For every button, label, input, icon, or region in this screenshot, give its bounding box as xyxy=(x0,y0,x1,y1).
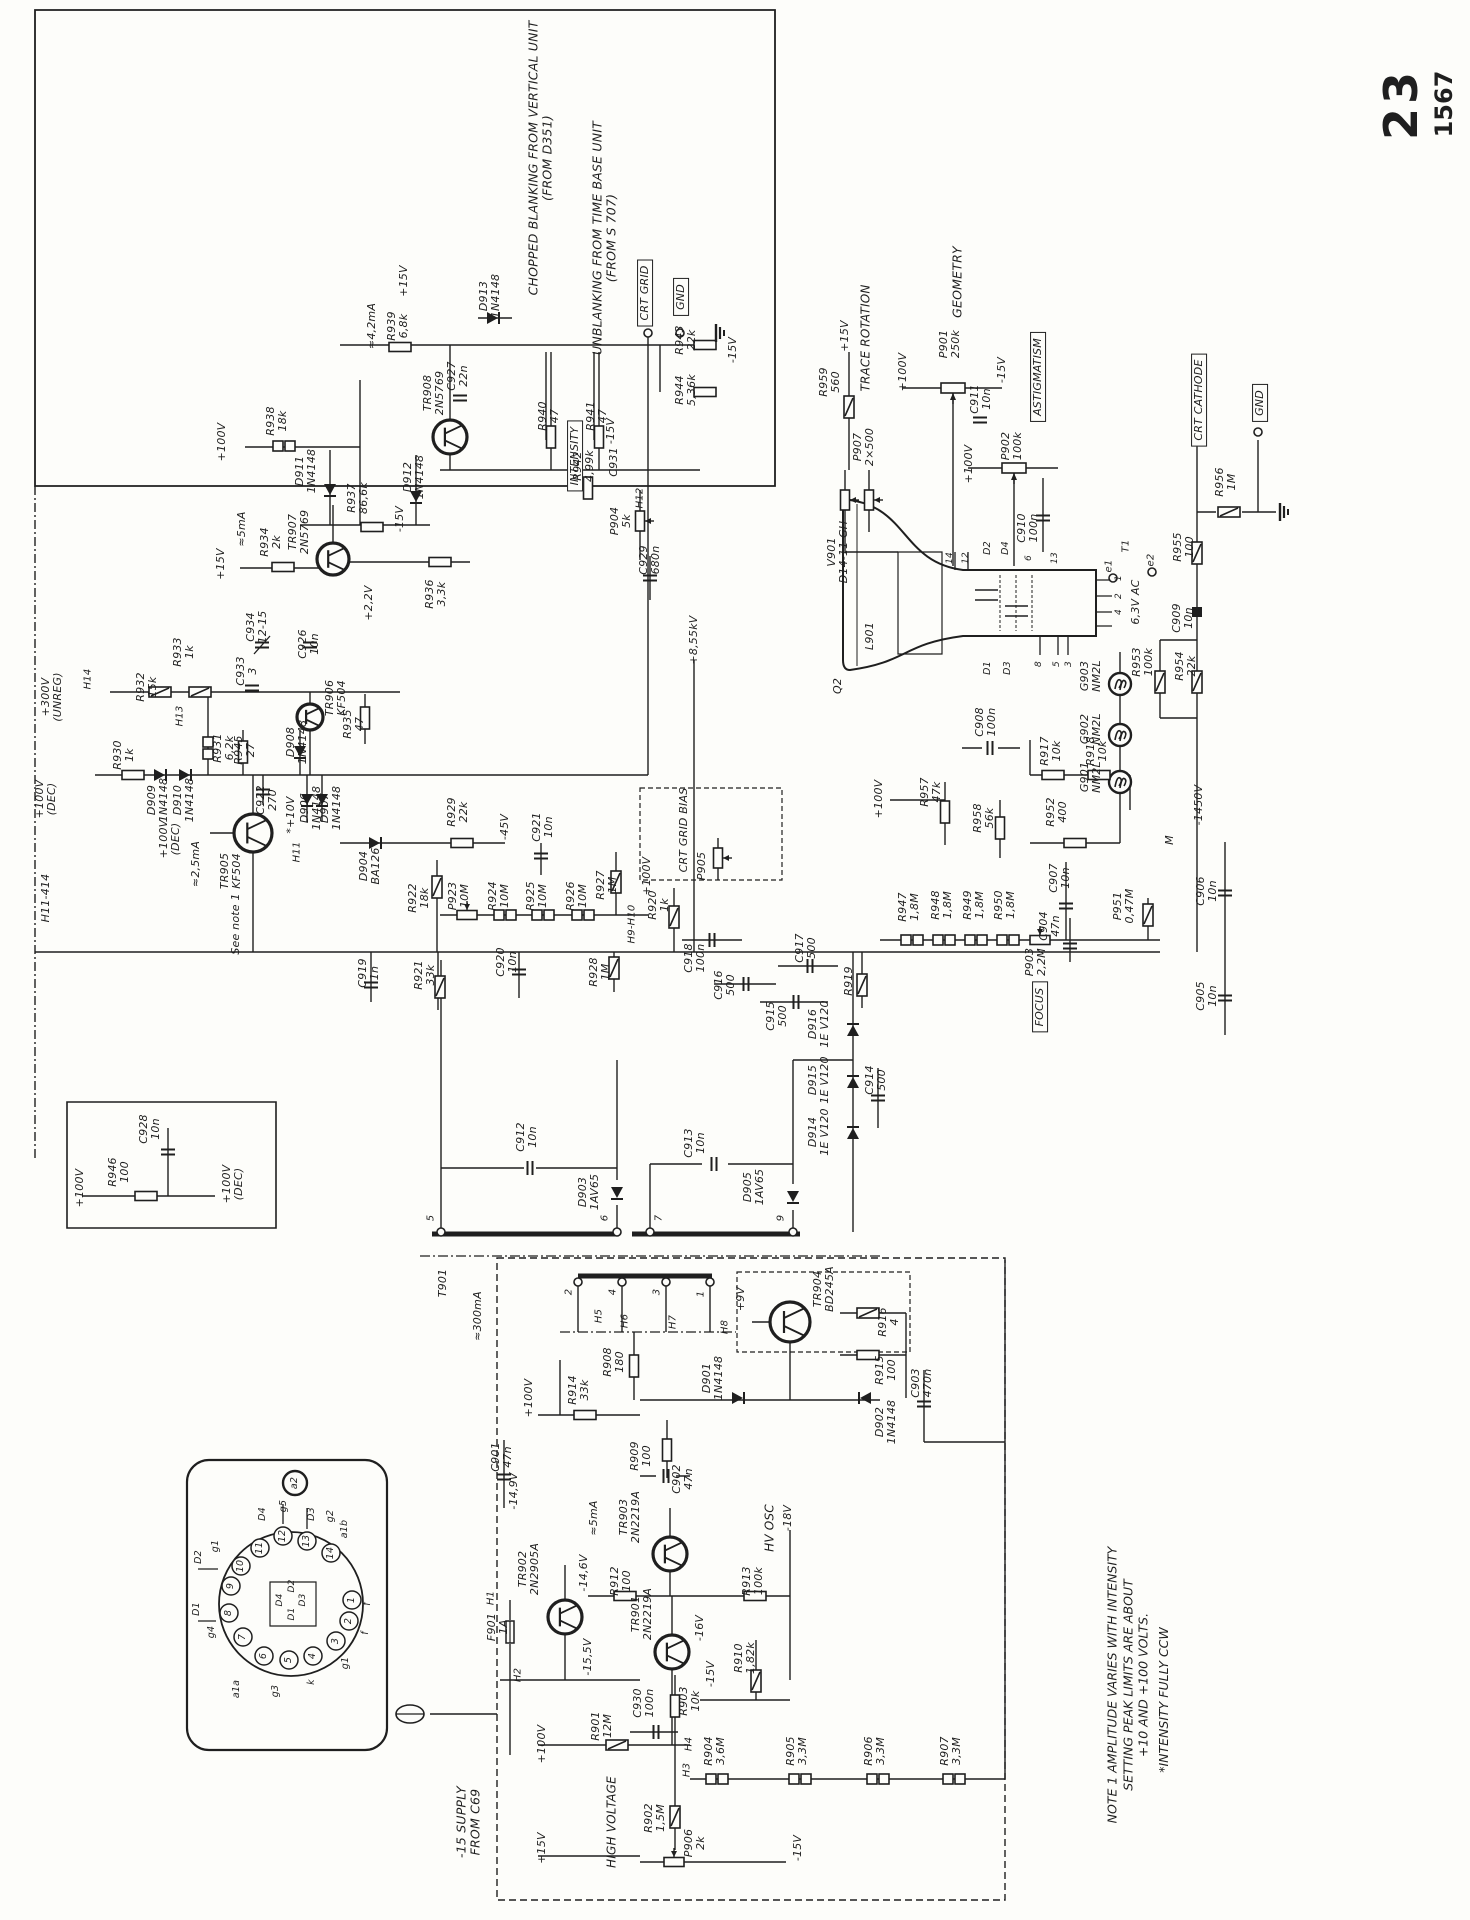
label-g3: g3 xyxy=(271,1685,281,1697)
label-h11: H11 xyxy=(293,842,304,863)
label-p902: P902 100k xyxy=(1000,432,1024,460)
label-+100v: +100V xyxy=(74,1169,86,1208)
label-gnd: GND xyxy=(1252,384,1268,422)
label-r949: R949 1,8M xyxy=(962,890,986,919)
label-r928: R928 1M xyxy=(588,957,612,986)
label-d4: D4 xyxy=(1001,541,1011,555)
label-+10v: *+10V xyxy=(285,796,297,833)
label-d912: D912 1N4148 xyxy=(402,455,426,499)
label-c903: C903 470n xyxy=(910,1368,934,1397)
label-d4: D4 xyxy=(276,1593,286,1606)
label-p951: P951 0,47M xyxy=(1112,889,1136,924)
label-+100v: +100V (DEC) xyxy=(34,780,58,819)
label-crt-grid: CRT GRID xyxy=(637,259,653,326)
label-r959: R959 560 xyxy=(818,367,842,396)
label-t901: T901 xyxy=(437,1269,449,1298)
label-gnd: GND xyxy=(673,278,689,316)
label-d3: D3 xyxy=(307,1507,317,1521)
label-g901: G901 NM2L xyxy=(1079,761,1103,793)
label-tr903: TR903 2N2219A xyxy=(618,1491,642,1543)
label-r924: R924 10M xyxy=(487,881,511,910)
label-g1: g1 xyxy=(211,1540,221,1552)
note-text: NOTE 1 AMPLITUDE VARIES WITH INTENSITY S… xyxy=(1105,1547,1152,1824)
label-r905: R905 3,3M xyxy=(785,1736,809,1765)
label-6: 6 xyxy=(1025,555,1035,561)
label-h6: H6 xyxy=(621,1314,632,1328)
label-+100v: +100V xyxy=(897,353,909,392)
label-d911: D911 1N4148 xyxy=(294,449,318,493)
label-a2: a2 xyxy=(290,1477,300,1489)
label-r927: R927 1M xyxy=(595,870,619,899)
label-g1: g1 xyxy=(341,1657,351,1669)
label-r920: R920 1k xyxy=(647,890,671,919)
label-8: 8 xyxy=(224,1610,234,1616)
label-r953: R953 100k xyxy=(1131,647,1155,676)
label-r914: R914 33k xyxy=(567,1375,591,1404)
label-4-2ma: ≈4,2mA xyxy=(366,303,378,349)
label-5ma: ≈5mA xyxy=(236,511,248,546)
note-footnote: *INTENSITY FULLY CCW xyxy=(1156,1627,1172,1773)
label-a1a: a1a xyxy=(232,1680,242,1698)
label-d2: D2 xyxy=(288,1579,298,1592)
label-c918: C918 100n xyxy=(683,943,707,972)
label-r939: R939 6,8k xyxy=(386,311,410,340)
label-c915: C915 500 xyxy=(765,1001,789,1030)
label-h14: H14 xyxy=(84,669,95,690)
label-c914: C914 500 xyxy=(864,1065,888,1094)
label-h8: H8 xyxy=(721,1320,732,1334)
label-r956: R956 1M xyxy=(1214,467,1238,496)
label-r936: R936 3,3k xyxy=(424,579,448,608)
label-r921: R921 33k xyxy=(413,960,437,989)
label-r932: R932 15k xyxy=(135,672,159,701)
label-14-9v: -14,9V xyxy=(508,1472,520,1509)
label-d908: D908 1N4148 xyxy=(285,720,309,764)
label-d915: D915 1E V120 xyxy=(807,1056,831,1103)
label-+15v: +15V xyxy=(215,548,227,580)
label-1: 1 xyxy=(347,1597,357,1603)
label-d3: D3 xyxy=(299,1593,309,1606)
label-high-voltage: HIGH VOLTAGE xyxy=(606,1776,619,1868)
label-+100v: +100V (DEC) xyxy=(221,1165,245,1204)
label-+100v: +100V (DEC) xyxy=(158,820,182,859)
label-r943: R943 22k xyxy=(674,325,698,354)
label-+9v: +9V xyxy=(735,1287,747,1311)
label-tr907: TR907 2N5769 xyxy=(287,510,311,554)
label-e1: e1 xyxy=(1105,560,1116,573)
label-r945: R945 27 xyxy=(233,735,257,764)
label-r913: R913 100k xyxy=(741,1566,765,1595)
label-c905: C905 10n xyxy=(1195,981,1219,1010)
label-p907: P907 2×500 xyxy=(852,428,876,466)
label-hv-osc: HV OSC xyxy=(764,1504,777,1552)
label-2-5ma: ≈2,5mA xyxy=(190,841,202,887)
label-f901: F901 1A xyxy=(486,1613,510,1641)
label-c909: C909 10n xyxy=(1171,603,1195,632)
label-c928: C928 10n xyxy=(138,1114,162,1143)
label-r910: R910 1,82k xyxy=(733,1642,757,1674)
label-2: 2 xyxy=(565,1289,576,1296)
label-r935: R935 47 xyxy=(342,709,366,738)
label-h1: H1 xyxy=(487,1591,498,1605)
label-h5: H5 xyxy=(595,1309,606,1323)
label-r903: R903 10k xyxy=(678,1686,702,1715)
label-d1: D1 xyxy=(192,1602,202,1616)
label-7: 7 xyxy=(238,1634,248,1640)
label-h4: H4 xyxy=(685,1737,696,1751)
label-6: 6 xyxy=(259,1653,269,1659)
label-tr904: TR904 BD245A xyxy=(812,1266,836,1312)
label-d910: D910 1N4148 xyxy=(172,778,196,822)
label-c927: C927 22n xyxy=(446,361,470,390)
label-h3: H3 xyxy=(683,1763,694,1777)
label-d2: D2 xyxy=(194,1550,204,1564)
label-v901: V901 D14-11 GH xyxy=(826,521,850,584)
sheet-number: 23 xyxy=(1374,68,1428,140)
label-r922: R922 18k xyxy=(407,883,431,912)
label-c912: C912 10n xyxy=(515,1122,539,1151)
label-c934: C934 12-15 xyxy=(245,611,269,644)
label-+15v: +15V xyxy=(398,265,410,297)
label-13: 13 xyxy=(302,1535,312,1548)
label-h9-h10: H9-H10 xyxy=(628,905,639,944)
label-d914: D914 1E V120 xyxy=(807,1108,831,1155)
label-crt-grid-bias: CRT GRID BIAS xyxy=(678,788,690,873)
label-3: 3 xyxy=(1065,661,1075,667)
label-h7: H7 xyxy=(669,1315,680,1329)
label-11: 11 xyxy=(255,1542,265,1555)
label-3: 3 xyxy=(653,1289,664,1296)
label-5: 5 xyxy=(284,1657,294,1663)
label-c922: C922 270 xyxy=(255,785,279,814)
label-c902: C902 47n xyxy=(671,1464,695,1493)
label-d902: D902 1N4148 xyxy=(874,1400,898,1444)
label-5ma: ≈5mA xyxy=(588,1500,600,1535)
label-c930: C930 100n xyxy=(632,1688,656,1717)
label-r946: R946 100 xyxy=(107,1157,131,1186)
label-g4: g4 xyxy=(207,1626,217,1638)
label-c921: C921 10n xyxy=(531,812,555,841)
label-15v: -15V xyxy=(394,506,406,532)
schematic-sheet: CHOPPED BLANKING FROM VERTICAL UNIT (FRO… xyxy=(0,0,1470,1920)
label-c933: C933 3 xyxy=(235,656,259,685)
label-h11-414: H11-414 xyxy=(40,874,52,923)
label-trace-rotation: TRACE ROTATION xyxy=(860,284,873,391)
label-13: 13 xyxy=(1051,552,1061,564)
label-r942: R942 4,99k xyxy=(572,450,596,482)
label-2: 2 xyxy=(1115,593,1125,599)
label-h2: H2 xyxy=(514,1668,525,1682)
label-f: f xyxy=(361,1631,371,1635)
label-r906: R906 3,3M xyxy=(863,1736,887,1765)
label-1: 1 xyxy=(697,1291,708,1298)
label-r901: R901 12M xyxy=(590,1711,614,1740)
label-r948: R948 1,8M xyxy=(930,890,954,919)
label-r944: R944 5,36k xyxy=(674,374,698,406)
label-15v: -15V xyxy=(705,1661,717,1687)
note-block: NOTE 1 AMPLITUDE VARIES WITH INTENSITY S… xyxy=(1078,1560,1328,1810)
label-g5: g5 xyxy=(279,1500,289,1512)
label-4: 4 xyxy=(1115,609,1125,615)
label-r955: R955 100 xyxy=(1172,532,1196,561)
label-14: 14 xyxy=(946,552,956,564)
label-r957: R957 47k xyxy=(919,777,943,806)
label-r925: R925 10M xyxy=(525,881,549,910)
label-15v: -15V xyxy=(996,357,1008,383)
label-c911: C911 10n xyxy=(969,384,993,413)
label-c920: C920 10n xyxy=(495,947,519,976)
label-14: 14 xyxy=(326,1547,336,1560)
label-d903: D903 1AV65 xyxy=(577,1174,601,1211)
label-+100v: +100V xyxy=(873,780,885,819)
label-r947: R947 1,8M xyxy=(897,892,921,921)
label-c926: C926 10n xyxy=(297,629,321,658)
label-r938: R938 18k xyxy=(265,406,289,435)
label-l901: L901 xyxy=(864,622,876,650)
label-4: 4 xyxy=(609,1289,620,1296)
label-g903: G903 NM2L xyxy=(1079,660,1103,692)
label-d1: D1 xyxy=(288,1607,298,1620)
label-d901: D901 1N4148 xyxy=(701,1356,725,1400)
label-tr908: TR908 2N5769 xyxy=(422,371,446,415)
label-p905: P905 xyxy=(696,852,708,880)
doc-number: 1567 xyxy=(1430,68,1458,140)
label-r926: R926 10M xyxy=(565,881,589,910)
label-c931: C931 xyxy=(608,447,620,476)
label-r929: R929 22k xyxy=(446,797,470,826)
label-r952: R952 400 xyxy=(1045,797,1069,826)
label-15v: -15V xyxy=(792,1835,804,1861)
label-r908: R908 180 xyxy=(602,1347,626,1376)
label-+15v: +15V xyxy=(839,320,851,352)
label-12: 12 xyxy=(278,1530,288,1543)
label-r917: R917 10k xyxy=(1039,736,1063,765)
label-+300v: +300V (UNREG) xyxy=(40,672,64,721)
label-chopped-blanking-from-vertical-unit: CHOPPED BLANKING FROM VERTICAL UNIT (FRO… xyxy=(527,21,554,296)
label-15v: -15V xyxy=(605,418,617,444)
label-d913: D913 1N4148 xyxy=(478,274,502,318)
label-r930: R930 1k xyxy=(112,740,136,769)
label-d909: D909 1N4148 xyxy=(146,778,170,822)
label-see-note-1: See note 1 xyxy=(230,893,242,954)
label-3: 3 xyxy=(331,1638,341,1644)
sheet-number-block: 23 1567 xyxy=(1374,68,1458,140)
label-m: M xyxy=(1164,835,1176,845)
label-d916: D916 1E V120 xyxy=(807,1000,831,1047)
label-8: 8 xyxy=(1035,661,1045,667)
label-5: 5 xyxy=(427,1215,438,1222)
label-c916: C916 500 xyxy=(713,970,737,999)
label-a1b: a1b xyxy=(340,1520,350,1539)
label-15-supply: -15 SUPPLY FROM C69 xyxy=(455,1786,482,1858)
label-45v: -45V xyxy=(499,814,511,840)
label-+100v: +100V xyxy=(523,1379,535,1418)
label-f: f xyxy=(363,1602,373,1606)
label-c901: C901 47n xyxy=(490,1442,514,1471)
label-d907: D907 1N4148 xyxy=(319,786,343,830)
label-15-5v: -15,5V xyxy=(582,1638,594,1675)
label-astigmatism: ASTIGMATISM xyxy=(1030,332,1046,422)
label-unblanking-from-time-base-unit: UNBLANKING FROM TIME BASE UNIT (FROM S 7… xyxy=(591,121,618,355)
label-9: 9 xyxy=(777,1215,788,1222)
label-r919: R919 xyxy=(843,966,855,995)
label-1450v: -1450V xyxy=(1193,785,1205,826)
label-+100v: +100V xyxy=(963,445,975,484)
label-e2: e2 xyxy=(1147,554,1158,567)
label-h12: H12 xyxy=(636,488,647,509)
label-c917: C917 500 xyxy=(794,933,818,962)
label-15v: -15V xyxy=(727,337,739,363)
label-c908: C908 100n xyxy=(974,707,998,736)
label-6: 6 xyxy=(601,1215,612,1222)
label-c910: C910 100n xyxy=(1016,513,1040,542)
label-6-3v-ac: 6,3V AC xyxy=(1130,579,1142,624)
label-r954: R954 22k xyxy=(1174,651,1198,680)
label-g2: g2 xyxy=(326,1510,336,1522)
label-d1: D1 xyxy=(983,661,993,675)
label-p903: P903 2,2M xyxy=(1024,948,1048,976)
label-14-6v: -14,6V xyxy=(578,1554,590,1591)
label-10: 10 xyxy=(236,1560,246,1573)
label-tr905: TR905 KF504 xyxy=(219,853,243,889)
label-c919: C919 1n xyxy=(357,958,381,987)
label-+2-2v: +2,2V xyxy=(363,585,375,620)
label-r916: R916 4 xyxy=(877,1307,901,1336)
label-r909: R909 100 xyxy=(629,1441,653,1470)
label-d2: D2 xyxy=(983,541,993,555)
label-18v: -18V xyxy=(782,1505,794,1531)
label-crt-cathode: CRT CATHODE xyxy=(1191,353,1207,446)
label-p923: P923 10M xyxy=(447,882,471,910)
label-r950: R950 1,8M xyxy=(993,890,1017,919)
label-7: 7 xyxy=(655,1215,666,1222)
label-t1: T1 xyxy=(1122,540,1133,553)
label-tr901: TR901 2N2219A xyxy=(630,1588,654,1640)
label-r904: R904 3,6M xyxy=(703,1736,727,1765)
label-tr902: TR902 2N2905A xyxy=(517,1543,541,1595)
label-1: 1 xyxy=(1115,575,1125,581)
label-+15v: +15V xyxy=(536,1832,548,1864)
label-geometry: GEOMETRY xyxy=(950,246,964,318)
label-h13: H13 xyxy=(176,706,187,727)
label-r907: R907 3,3M xyxy=(939,1736,963,1765)
label-r915: R915 100 xyxy=(874,1355,898,1384)
label-q2: Q2 xyxy=(832,678,844,694)
label-k: k xyxy=(307,1679,317,1685)
label-r934: R934 2k xyxy=(259,527,283,556)
label-c907: C907 10n xyxy=(1048,863,1072,892)
label-r933: R933 1k xyxy=(172,637,196,666)
label-16v: -16V xyxy=(694,1615,706,1641)
label-d3: D3 xyxy=(1003,661,1013,675)
label-c906: C906 10n xyxy=(1195,876,1219,905)
label-d4: D4 xyxy=(258,1507,268,1521)
label-p906: P906 2k xyxy=(683,1829,707,1857)
label-d905: D905 1AV65 xyxy=(742,1169,766,1206)
label-+100v: +100V xyxy=(216,423,228,462)
label-r937: R937 86,6k xyxy=(346,482,370,514)
label-r958: R958 56k xyxy=(972,803,996,832)
label-2: 2 xyxy=(344,1618,354,1624)
label-4: 4 xyxy=(308,1653,318,1659)
label-focus: FOCUS xyxy=(1032,982,1048,1033)
label-+8-55kv: +8,55kV xyxy=(688,615,700,664)
label-12: 12 xyxy=(962,552,972,564)
label-300ma: ≈300mA xyxy=(472,1291,484,1341)
label-5: 5 xyxy=(1053,661,1063,667)
label-+100v: +100V xyxy=(536,1725,548,1764)
label-c904: C904 47n xyxy=(1038,911,1062,940)
label-r940: R940 47 xyxy=(537,401,561,430)
label-9: 9 xyxy=(226,1583,236,1589)
label-p901: P901 250k xyxy=(938,330,962,358)
label-d904: D904 BA126 xyxy=(358,847,382,884)
label-p904: P904 5k xyxy=(609,507,633,535)
label-c913: C913 10n xyxy=(683,1128,707,1157)
label-r918: R918 10k xyxy=(1085,736,1109,765)
label-c929: C929 680n xyxy=(638,545,662,574)
label-r902: R902 1,5M xyxy=(643,1803,667,1832)
